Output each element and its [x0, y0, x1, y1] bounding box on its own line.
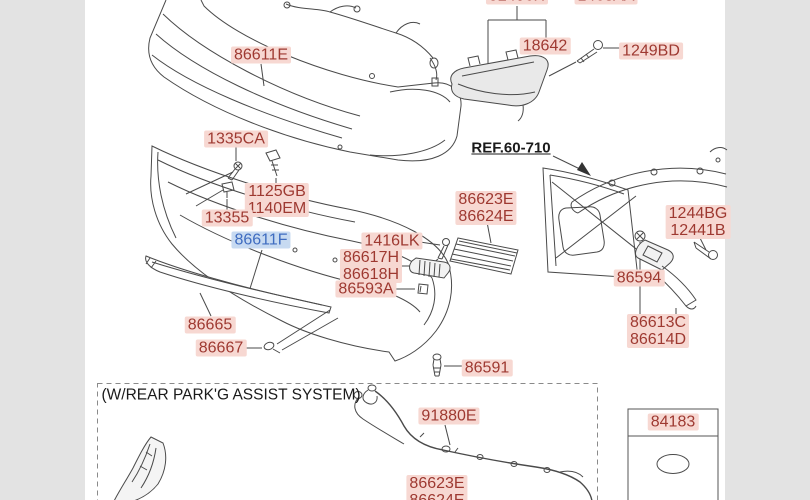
part-label-1249BD[interactable]: 1249BD: [619, 43, 683, 60]
part-label-REF-60-710[interactable]: REF.60-710: [468, 140, 553, 157]
part-label-1125GB-1140EM[interactable]: 1125GB 1140EM: [245, 183, 309, 217]
part-label-86591[interactable]: 86591: [462, 360, 513, 377]
part-label-86623E-86624E-lower[interactable]: 86623E 86624E: [406, 475, 467, 500]
part-label-86613C-86614D[interactable]: 86613C 86614D: [627, 314, 689, 348]
part-label-86617H-86618H[interactable]: 86617H 86618H: [340, 249, 402, 283]
part-label-84183[interactable]: 84183: [648, 414, 699, 431]
part-label-13355[interactable]: 13355: [202, 210, 253, 227]
part-label-86623E-86624E-upper[interactable]: 86623E 86624E: [455, 191, 516, 225]
parts-diagram-canvas: 92406H1463AA86611E186421249BDREF.60-7101…: [0, 0, 810, 500]
part-label-1335CA[interactable]: 1335CA: [204, 131, 268, 148]
part-label-86667[interactable]: 86667: [196, 340, 247, 357]
part-label-18642[interactable]: 18642: [520, 38, 571, 55]
part-label-86611E[interactable]: 86611E: [231, 47, 291, 64]
part-label-1463AA[interactable]: 1463AA: [575, 0, 638, 5]
part-label-86611F[interactable]: 86611F: [231, 232, 290, 249]
part-label-86593A[interactable]: 86593A: [335, 281, 396, 298]
part-label-92406H[interactable]: 92406H: [486, 0, 548, 5]
part-labels-layer: 92406H1463AA86611E186421249BDREF.60-7101…: [0, 0, 810, 500]
part-label-86594[interactable]: 86594: [614, 270, 665, 287]
option-note: (W/REAR PARK'G ASSIST SYSTEM): [98, 387, 363, 404]
part-label-1416LK[interactable]: 1416LK: [361, 233, 422, 250]
part-label-91880E[interactable]: 91880E: [418, 408, 479, 425]
part-label-1244BG-12441B[interactable]: 1244BG 12441B: [666, 205, 731, 239]
part-label-86665[interactable]: 86665: [185, 317, 236, 334]
